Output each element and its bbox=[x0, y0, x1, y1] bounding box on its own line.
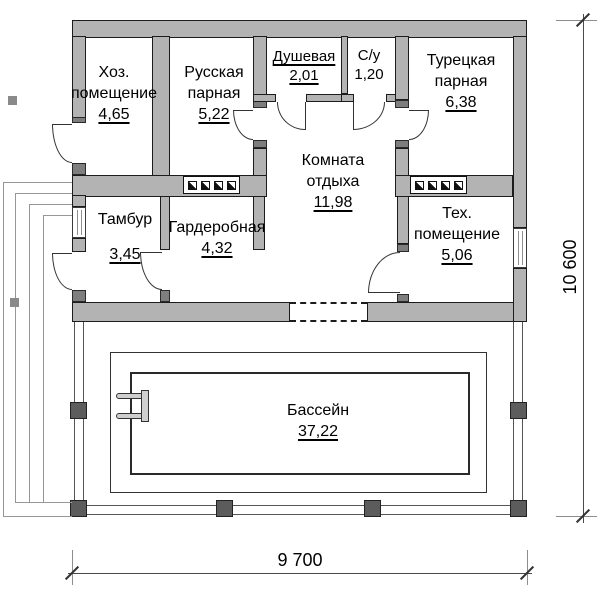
porch-step-line bbox=[3, 182, 72, 183]
room-name: Хоз. помещение bbox=[64, 62, 164, 104]
room-name: Комната отдыха bbox=[283, 150, 383, 192]
porch-step-line bbox=[3, 516, 72, 517]
room-label-su: С/у 1,20 bbox=[340, 46, 398, 84]
window bbox=[513, 228, 527, 268]
porch-step-line bbox=[15, 193, 16, 503]
dimension-extension bbox=[556, 20, 597, 21]
porch-step-line bbox=[29, 204, 30, 503]
door-jamb bbox=[395, 100, 409, 108]
door-arc bbox=[368, 252, 400, 293]
porch-step-line bbox=[15, 502, 72, 503]
dimension-label-height: 10 600 bbox=[560, 232, 580, 302]
porch-step-line bbox=[15, 193, 72, 194]
wall-south-left bbox=[72, 302, 290, 322]
porch-step-line bbox=[43, 215, 44, 503]
door-jamb bbox=[160, 290, 170, 302]
floor-plan: 10 600 9 700 Хоз. помещение 4,65 Русская… bbox=[0, 0, 600, 593]
room-name: Тех. помещение bbox=[407, 203, 507, 245]
door-leaf bbox=[305, 102, 306, 130]
dimension-extension bbox=[527, 550, 528, 585]
wall-left-lower bbox=[72, 195, 86, 207]
room-name: Русская парная bbox=[164, 62, 264, 104]
room-label-bassein: Бассейн 37,22 bbox=[268, 400, 368, 442]
room-label-garderob: Гардеробная 4,32 bbox=[157, 217, 277, 259]
column-post bbox=[70, 500, 87, 517]
column-post bbox=[216, 500, 233, 517]
door-jamb bbox=[72, 163, 86, 175]
room-label-russkaya: Русская парная 5,22 bbox=[164, 62, 264, 125]
column-post bbox=[70, 402, 87, 419]
sauna-heater-icon bbox=[410, 176, 467, 194]
column-post bbox=[364, 500, 381, 517]
column-post bbox=[510, 500, 527, 517]
room-area: 4,65 bbox=[98, 104, 129, 125]
room-label-hoz: Хоз. помещение 4,65 bbox=[64, 62, 164, 125]
room-area: 11,98 bbox=[314, 192, 353, 213]
column-post bbox=[510, 402, 527, 419]
door-jamb bbox=[395, 140, 409, 148]
door-leaf bbox=[368, 292, 400, 293]
glazed-wall-bottom bbox=[72, 505, 527, 515]
pool-ladder-icon bbox=[141, 390, 149, 422]
door-jamb bbox=[253, 140, 267, 148]
room-area: 4,32 bbox=[201, 238, 232, 259]
wall-top bbox=[72, 20, 527, 38]
room-label-komnata: Комната отдыха 11,98 bbox=[283, 150, 383, 213]
room-label-turetskaya: Турецкая парная 6,38 bbox=[411, 50, 511, 113]
room-area: 1,20 bbox=[354, 66, 383, 83]
dimension-extension bbox=[72, 550, 73, 585]
door-arc bbox=[409, 110, 429, 140]
wall-south-right bbox=[367, 302, 527, 322]
room-name: Гардеробная bbox=[157, 217, 277, 238]
door-arc bbox=[353, 102, 385, 130]
sauna-heater-icon bbox=[183, 176, 240, 194]
door-jamb bbox=[72, 290, 86, 302]
dimension-line-height bbox=[583, 14, 584, 523]
room-area: 2,01 bbox=[289, 66, 318, 85]
room-area: 6,38 bbox=[445, 92, 476, 113]
door-jamb bbox=[397, 294, 409, 302]
door-leaf bbox=[353, 102, 354, 130]
dimension-extension bbox=[556, 516, 597, 517]
wall-right-upper bbox=[513, 36, 527, 228]
wall-su-bottom bbox=[341, 94, 354, 102]
room-name: Душевая bbox=[264, 47, 344, 66]
room-label-dushevaya: Душевая 2,01 bbox=[264, 47, 344, 85]
door-arc bbox=[52, 253, 72, 290]
room-name: Бассейн bbox=[268, 400, 368, 421]
door-arc bbox=[277, 102, 305, 130]
porch-step-line bbox=[43, 215, 72, 216]
dimension-line-width bbox=[68, 573, 532, 574]
wall-right-lower bbox=[513, 268, 527, 322]
room-area: 5,22 bbox=[198, 104, 229, 125]
dimension-label-width: 9 700 bbox=[250, 550, 350, 570]
site-marker-square bbox=[10, 298, 19, 307]
porch-step-line bbox=[29, 204, 72, 205]
room-area: 37,22 bbox=[298, 421, 338, 442]
door-arc bbox=[52, 124, 72, 163]
site-marker-square bbox=[8, 96, 17, 105]
partition-turetskaya-left bbox=[395, 148, 409, 176]
porch-step-line bbox=[3, 182, 4, 517]
sliding-opening bbox=[290, 302, 367, 322]
room-name: С/у bbox=[340, 46, 398, 65]
room-area: 5,06 bbox=[441, 245, 472, 266]
room-label-teh: Тех. помещение 5,06 bbox=[407, 203, 507, 266]
partition-russkaya-right bbox=[253, 148, 267, 176]
room-area: 3,45 bbox=[109, 244, 140, 265]
room-name: Турецкая парная bbox=[411, 50, 511, 92]
door-leaf bbox=[52, 253, 72, 254]
